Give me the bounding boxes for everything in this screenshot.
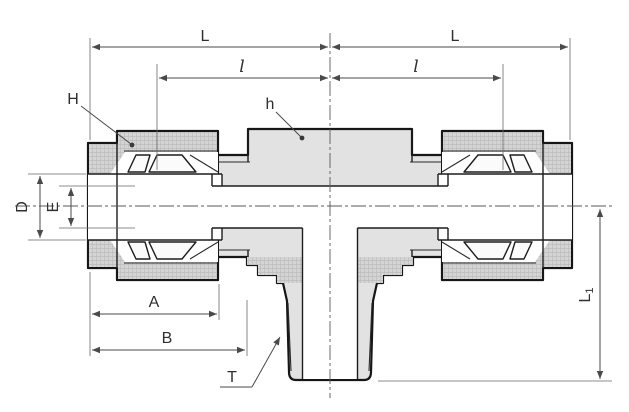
dim-l-left-label: l [239, 57, 244, 77]
callout-H-label: H [67, 91, 79, 108]
callout-H-dot [130, 143, 135, 148]
left-tube-socket [88, 174, 222, 240]
callout-H-leader [81, 106, 131, 144]
dim-L-left-label: L [201, 28, 210, 45]
dim-E-label: E [45, 202, 62, 213]
technical-drawing-page: L L l l H h D E A B T [0, 0, 629, 412]
dim-L-right-label: L [451, 28, 460, 45]
tee-fitting-drawing: L L l l H h D E A B T [0, 0, 629, 412]
dim-L1-label: L1 [577, 287, 596, 302]
dim-l-right-label: l [413, 57, 418, 77]
dim-B-label: B [162, 330, 173, 347]
dim-A-label: A [149, 294, 160, 311]
callout-h-dot [300, 136, 305, 141]
callout-T-label: T [227, 369, 237, 386]
dim-D-label: D [14, 201, 31, 213]
callout-T-leader [252, 337, 280, 387]
dim-L1-main: L [577, 294, 594, 303]
callout-h-label: h [266, 96, 275, 113]
right-tube-socket [438, 174, 572, 240]
dim-L1-sub: 1 [584, 287, 596, 293]
